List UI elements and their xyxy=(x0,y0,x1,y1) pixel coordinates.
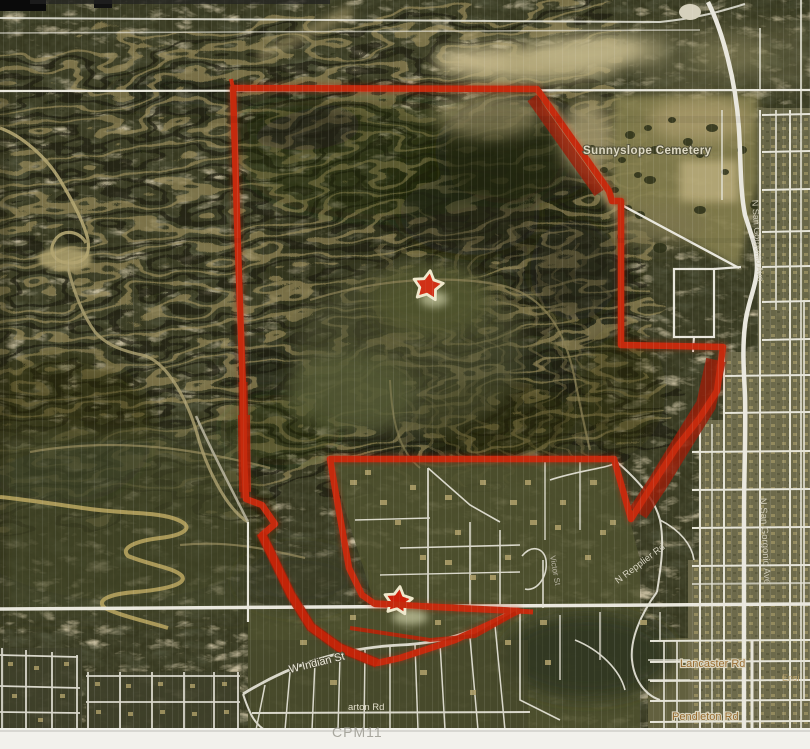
svg-text:CPM11: CPM11 xyxy=(332,724,383,740)
